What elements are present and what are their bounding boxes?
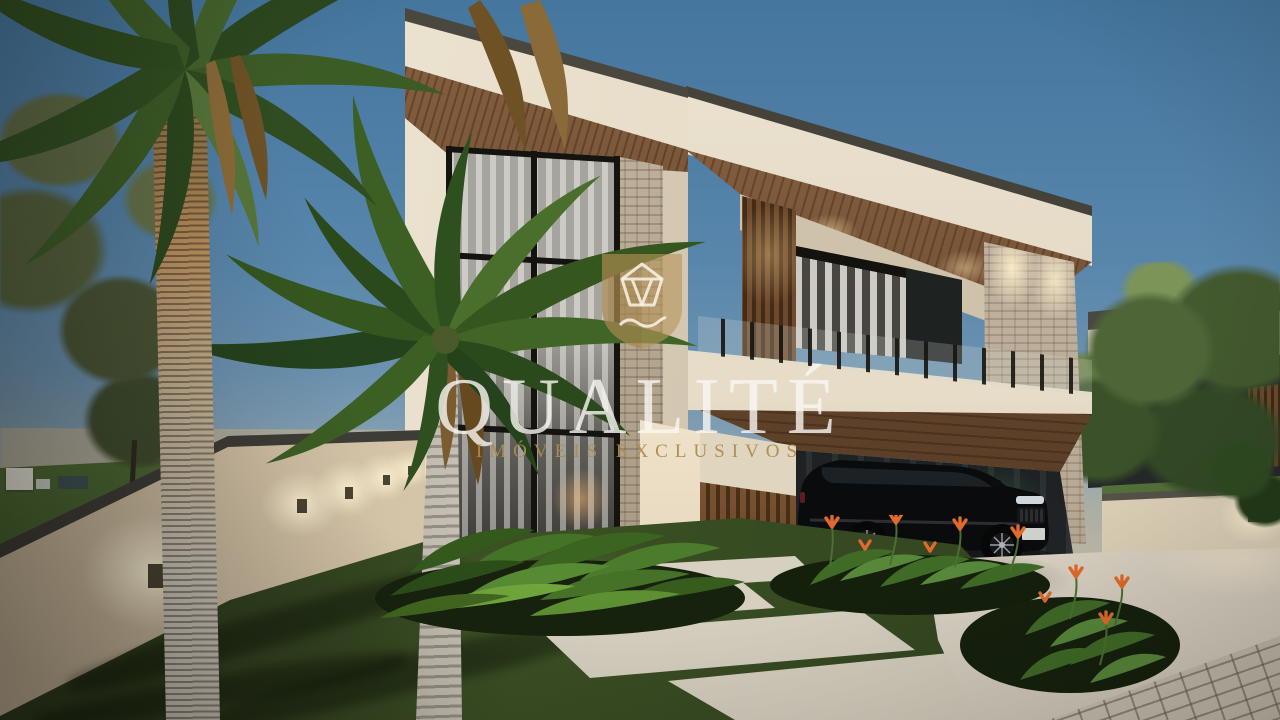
- watermark-tagline: IMÓVEIS EXCLUSIVOS: [0, 441, 1280, 463]
- property-render-photo: QUALITÉ IMÓVEIS EXCLUSIVOS: [0, 0, 1280, 720]
- qualite-crest-icon: [594, 252, 690, 352]
- watermark-brand: QUALITÉ: [0, 362, 1280, 453]
- photo-vignette: [0, 0, 1280, 720]
